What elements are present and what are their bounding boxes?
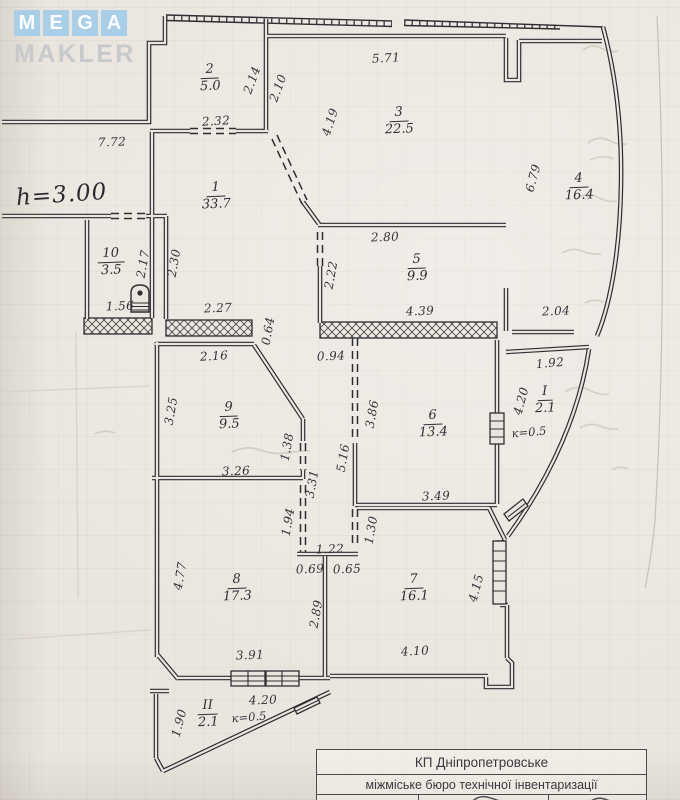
floor-plan-drawing xyxy=(0,0,680,800)
signature-scribble xyxy=(549,795,646,800)
title-block-org-line1: КП Дніпропетровське xyxy=(317,750,646,775)
scanned-floor-plan-page: M E G A MAKLER h=3.00 1 33.7 2 5.0 3 22.… xyxy=(0,0,680,800)
walls xyxy=(2,16,621,771)
title-block-cell xyxy=(419,795,549,800)
page-edge-line xyxy=(645,16,662,588)
paper-creases xyxy=(0,332,150,640)
window-symbols xyxy=(231,413,528,714)
title-block-cell xyxy=(549,795,646,800)
title-block-cell xyxy=(317,795,419,800)
toilet-icon xyxy=(131,285,149,312)
title-block-signature-row xyxy=(317,795,646,800)
bleed-through-marks xyxy=(95,46,628,470)
title-block: КП Дніпропетровське міжміське бюро техні… xyxy=(316,749,647,800)
signature-scribble xyxy=(419,795,548,800)
hatched-walls xyxy=(84,318,497,338)
top-boundary-wall xyxy=(166,15,603,29)
door-openings-dashed xyxy=(111,129,358,553)
title-block-org-line2: міжміське бюро технічної інвентаризації xyxy=(317,775,646,795)
